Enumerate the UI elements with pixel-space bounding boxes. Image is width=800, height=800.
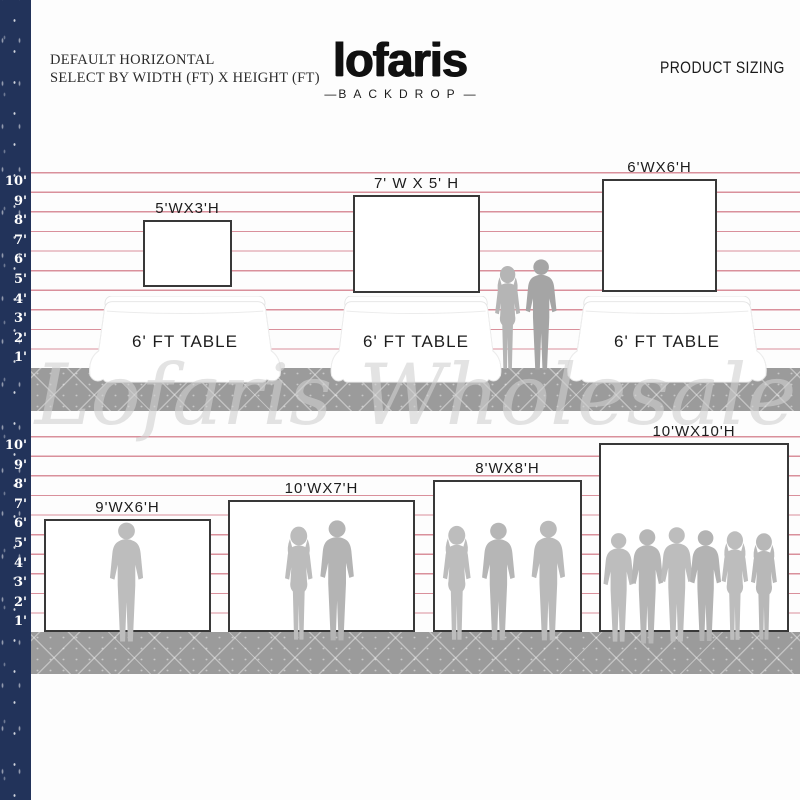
ruler-strip bbox=[0, 0, 31, 800]
dash-right: — bbox=[464, 87, 476, 101]
brand-subtitle: — BACKDROP — bbox=[290, 87, 510, 101]
ruler-mark-2ft: 2' bbox=[0, 329, 31, 349]
backdrop-5x3 bbox=[143, 220, 232, 287]
ruler-mark-1ft: 1' bbox=[0, 348, 31, 368]
brand-logo: lofaris — BACKDROP — bbox=[290, 34, 510, 101]
table-6ft-3: 6' FT TABLE bbox=[563, 296, 771, 386]
ruler-mark-3ft: 3' bbox=[0, 573, 31, 593]
backdrop-label: 9'WX6'H bbox=[14, 499, 241, 516]
table-label: 6' FT TABLE bbox=[327, 332, 505, 352]
backdrop-label: 8'WX8'H bbox=[403, 460, 612, 477]
couple-silhouette bbox=[277, 519, 360, 643]
man-silhouette bbox=[104, 521, 149, 644]
ruler-mark-7ft: 7' bbox=[0, 495, 31, 515]
trio-silhouette-graphic bbox=[435, 519, 571, 643]
couple-silhouette-graphic bbox=[488, 258, 562, 372]
backdrop-label: 7' W X 5' H bbox=[323, 175, 510, 192]
ruler-mark-6ft: 6' bbox=[0, 250, 31, 270]
ruler-mark-7ft: 7' bbox=[0, 231, 31, 251]
ruler-mark-6ft: 6' bbox=[0, 514, 31, 534]
trio-silhouette bbox=[435, 519, 571, 643]
brand-name: lofaris bbox=[290, 34, 510, 86]
dash-left: — bbox=[324, 87, 336, 101]
ruler-mark-9ft: 9' bbox=[0, 192, 31, 212]
backdrop-6x6 bbox=[602, 179, 717, 292]
backdrop-label: 10'WX7'H bbox=[198, 480, 445, 497]
ruler-mark-5ft: 5' bbox=[0, 270, 31, 290]
table-6ft-2: 6' FT TABLE bbox=[327, 296, 505, 386]
couple-silhouette-graphic bbox=[277, 519, 360, 643]
ruler-mark-4ft: 4' bbox=[0, 290, 31, 310]
ruler-mark-10ft: 10' bbox=[0, 436, 31, 456]
ruler-mark-2ft: 2' bbox=[0, 593, 31, 613]
ruler-mark-5ft: 5' bbox=[0, 534, 31, 554]
product-sizing-graphic: DEFAULT HORIZONTAL SELECT BY WIDTH (FT) … bbox=[0, 0, 800, 800]
table-6ft-1: 6' FT TABLE bbox=[85, 296, 285, 386]
backdrop-label: 10'WX10'H bbox=[569, 423, 800, 440]
backdrop-7x5 bbox=[353, 195, 480, 293]
bottom-ruler: 10' 9' 8' 7' 6' 5' 4' 3' 2' 1' bbox=[0, 436, 31, 632]
man-silhouette-graphic bbox=[104, 521, 149, 644]
group-silhouette-graphic bbox=[598, 526, 785, 644]
table-label: 6' FT TABLE bbox=[563, 332, 771, 352]
ruler-mark-3ft: 3' bbox=[0, 309, 31, 329]
couple-silhouette bbox=[488, 258, 562, 372]
ruler-mark-1ft: 1' bbox=[0, 612, 31, 632]
group-silhouette bbox=[598, 526, 785, 644]
top-ruler: 10' 9' 8' 7' 6' 5' 4' 3' 2' 1' bbox=[0, 172, 31, 368]
brand-subtitle-text: BACKDROP bbox=[338, 87, 461, 101]
instruction-line2: SELECT BY WIDTH (FT) X HEIGHT (FT) bbox=[50, 70, 320, 88]
ruler-mark-8ft: 8' bbox=[0, 475, 31, 495]
instruction-line1: DEFAULT HORIZONTAL bbox=[50, 52, 320, 70]
ruler-mark-9ft: 9' bbox=[0, 456, 31, 476]
backdrop-label: 6'WX6'H bbox=[572, 159, 747, 176]
table-label: 6' FT TABLE bbox=[85, 332, 285, 352]
backdrop-label: 5'WX3'H bbox=[113, 200, 262, 217]
header-instructions: DEFAULT HORIZONTAL SELECT BY WIDTH (FT) … bbox=[50, 52, 320, 87]
ruler-mark-10ft: 10' bbox=[0, 172, 31, 192]
ruler-mark-4ft: 4' bbox=[0, 554, 31, 574]
ruler-mark-8ft: 8' bbox=[0, 211, 31, 231]
page-title: PRODUCT SIZING bbox=[660, 58, 785, 78]
